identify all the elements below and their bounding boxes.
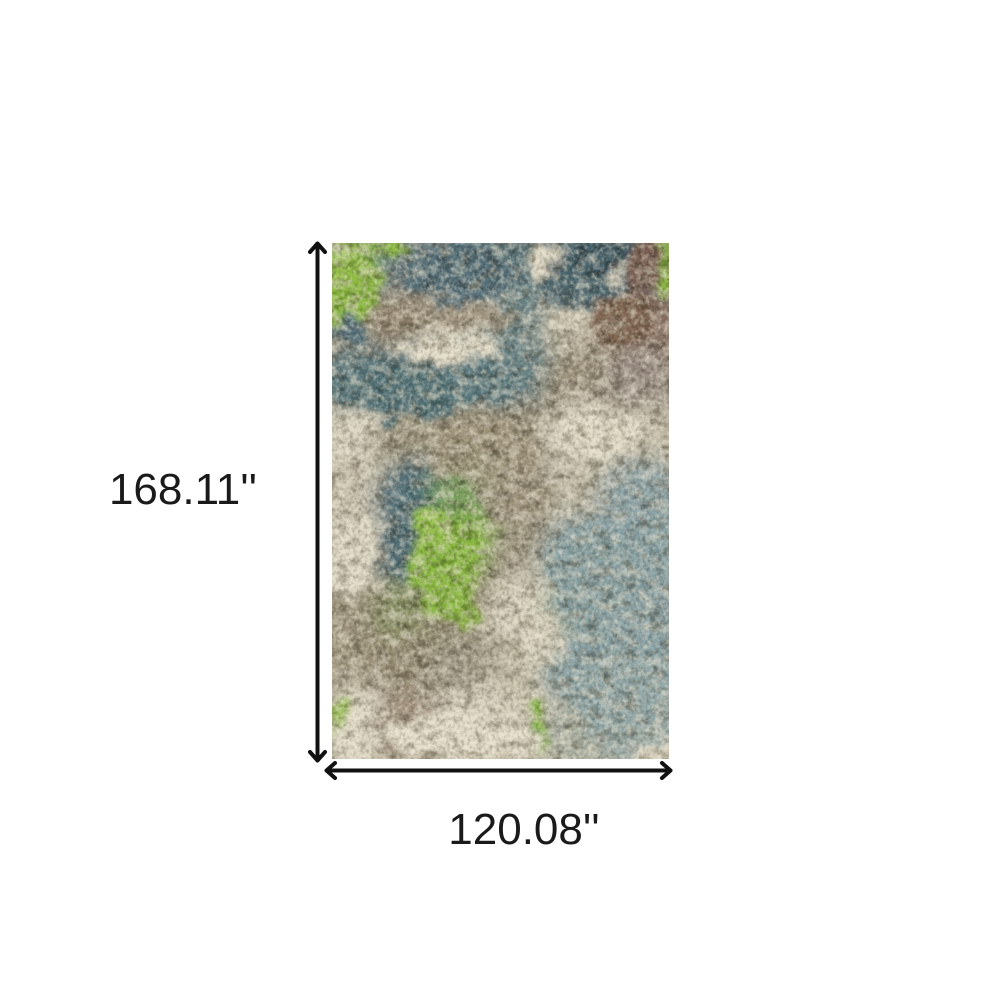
svg-text:168.11'': 168.11'' [109, 465, 257, 514]
svg-text:120.08'': 120.08'' [448, 805, 599, 854]
